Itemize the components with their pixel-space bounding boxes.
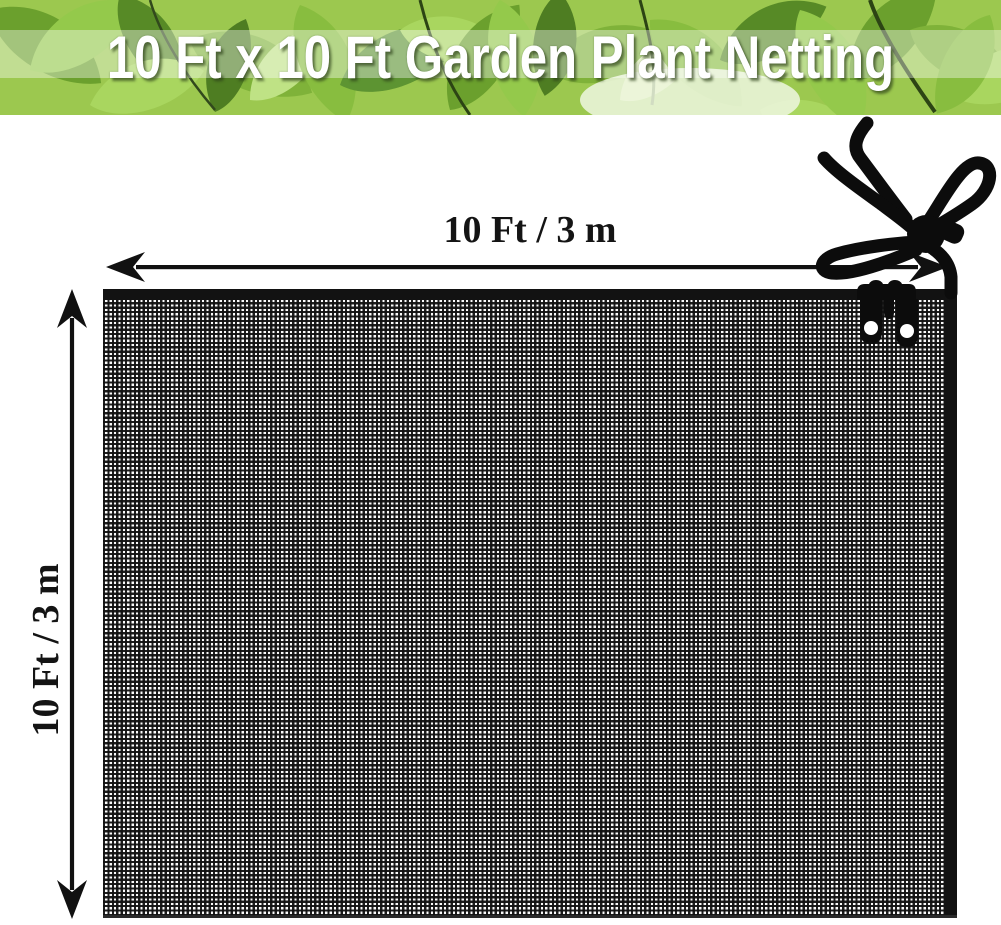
netting-clip-icon (857, 280, 918, 347)
product-image: 10 Ft x 10 Ft Garden Plant Netting 10 Ft… (0, 0, 1001, 925)
height-dimension-arrow (57, 289, 87, 919)
annotation-overlay (0, 0, 1001, 925)
